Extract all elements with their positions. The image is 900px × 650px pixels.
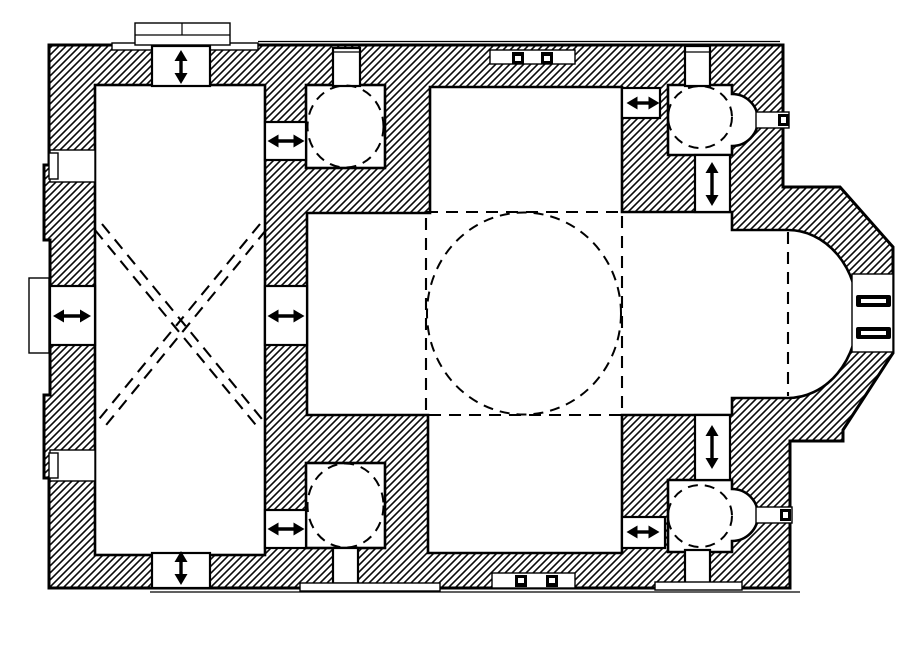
north-wall-window-niche — [490, 50, 575, 64]
floor-plan-canvas — [0, 0, 900, 650]
west-wall-window-upper — [49, 150, 95, 182]
west-porch-steps — [29, 278, 49, 353]
south-threshold-east — [655, 582, 742, 590]
sw-chamber-south-door — [333, 548, 358, 587]
west-wall-window-lower — [49, 450, 95, 481]
church-floor-plan — [0, 0, 900, 650]
se-apsidiole-window — [756, 507, 792, 523]
south-threshold-west — [300, 583, 440, 591]
apse-window — [852, 274, 893, 352]
nw-chamber-north-door — [333, 48, 360, 86]
south-wall-window-niche — [492, 573, 575, 588]
ne-apsidiole-window — [756, 112, 789, 128]
